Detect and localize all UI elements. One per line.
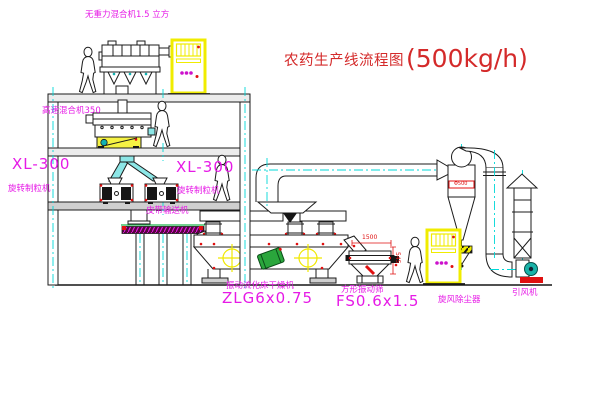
granulator-left-drawing bbox=[100, 178, 134, 204]
fluid-bed-dryer-drawing bbox=[194, 211, 366, 283]
belt-conveyor-drawing bbox=[121, 225, 205, 285]
person-top-floor bbox=[80, 47, 96, 92]
gravity-mixer-label: 无重力混合机1.5 立方 bbox=[85, 11, 169, 20]
title-text: 农药生产线流程图 bbox=[284, 49, 404, 73]
person-ground-floor bbox=[407, 237, 423, 282]
fan-label: 引风机 bbox=[512, 289, 538, 298]
mixer-feed-pipe bbox=[118, 100, 127, 114]
fan-drawing bbox=[516, 260, 543, 283]
deck-top bbox=[48, 94, 250, 102]
sieve-length-dimension: 1500 bbox=[362, 235, 377, 241]
belt-conveyor-label: 皮带输送机 bbox=[146, 207, 189, 216]
cad-drawing-canvas: 农药生产线流程图 (500kg/h) 无重力混合机1.5 立方 高速混合机350… bbox=[0, 0, 600, 403]
granulator-right-drawing bbox=[145, 178, 179, 204]
sieve-model-label: FS0.6x1.5 bbox=[336, 294, 419, 309]
deck-middle bbox=[48, 148, 250, 156]
sieve-height-dimension: 545 bbox=[394, 252, 400, 263]
title-capacity: (500kg/h) bbox=[406, 44, 528, 73]
cyclone-label: 旋风除尘器 bbox=[438, 296, 481, 305]
cyclone-band-text: Φ500 bbox=[454, 182, 467, 187]
granulator-right-name-label: 旋转制粒机 bbox=[177, 187, 220, 196]
granulator-right-model-label: XL-300 bbox=[176, 160, 234, 175]
control-cabinet-lower bbox=[423, 230, 465, 284]
feed-duct-drawing bbox=[252, 158, 449, 223]
dryer-model-label: ZLG6x0.75 bbox=[222, 291, 313, 306]
granulator-left-name-label: 旋转制粒机 bbox=[8, 185, 51, 194]
right-column-drawing bbox=[240, 87, 250, 290]
y-chute-drawing bbox=[109, 156, 162, 181]
mixer-side-port bbox=[148, 128, 155, 135]
drawing-title: 农药生产线流程图 (500kg/h) bbox=[284, 44, 528, 73]
gravity-mixer-drawing bbox=[99, 41, 172, 94]
person-second-floor bbox=[154, 101, 170, 146]
high-speed-mixer-label: 高速混合机350 bbox=[42, 107, 101, 116]
granulator-left-model-label: XL-300 bbox=[12, 157, 70, 172]
control-cabinet-upper bbox=[168, 40, 210, 94]
